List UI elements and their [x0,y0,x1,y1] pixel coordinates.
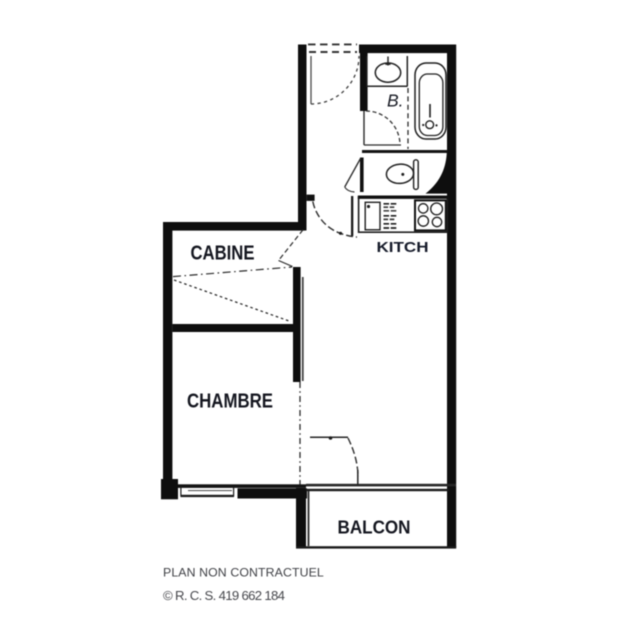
svg-text:CHAMBRE: CHAMBRE [187,389,273,412]
svg-text:BALCON: BALCON [338,518,411,538]
svg-text:PLAN NON CONTRACTUEL: PLAN NON CONTRACTUEL [163,565,324,579]
svg-text:B.: B. [387,91,404,111]
svg-text:KITCH: KITCH [377,240,429,256]
svg-text:CABINE: CABINE [191,243,255,265]
svg-text:© R. C. S. 419 662 184: © R. C. S. 419 662 184 [163,588,285,603]
